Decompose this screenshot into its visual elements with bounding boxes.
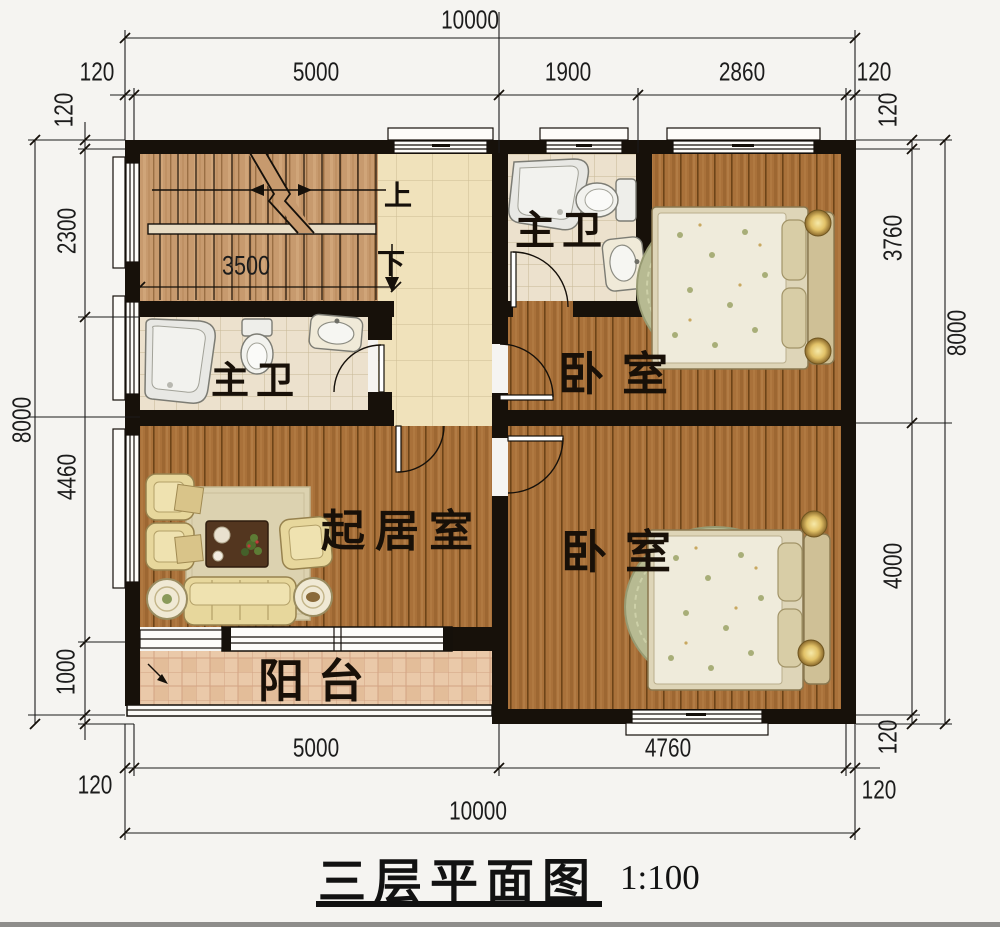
side-tray [174,484,203,513]
wall-exterior-right [841,140,856,724]
room-label-bath-top: 主卫 [515,198,609,256]
armchair-cushion [289,525,324,561]
bedside-lamp [805,210,831,236]
sink-left [309,314,364,352]
dim-top-wall-left: 120 [80,57,115,88]
dim-bottom-wall-left: 120 [78,770,113,801]
wall-interior [492,410,856,426]
window-corridor-top [388,128,493,153]
wall-interior [452,627,492,651]
room-label-balcony: 阳台 [258,645,378,711]
sofa-back [190,583,290,605]
dim-stair-width: 3500 [222,251,270,282]
pillow [778,609,802,667]
dim-bottom-wall-right: 120 [862,775,897,806]
dim-right-seg1: 3760 [878,215,909,261]
dim-right-seg2: 4000 [878,543,909,589]
wall-interior [125,301,394,317]
room-label-living: 起居室 [321,495,483,559]
wall-interior [368,392,392,426]
dim-top-wall-right-v: 120 [873,93,904,128]
window-bath-top [540,128,628,153]
window-bedroom-top [667,128,820,153]
wall-interior [492,140,508,344]
stair-landing-rail [148,224,376,234]
stair-up-label: 上 [384,174,412,214]
dim-top-wall-left-v: 120 [49,93,80,128]
title-underline [316,901,602,907]
dim-bottom-overall: 10000 [449,796,507,827]
floor-plan-drawing [0,0,1000,927]
bathtub-left [145,319,215,403]
dim-top-wall-right: 120 [857,57,892,88]
balcony-side-window [140,630,222,648]
pillow [778,543,802,601]
dim-top-overall: 10000 [441,5,499,36]
dim-left-seg1: 2300 [52,208,83,254]
window-stairwell-left [113,157,139,268]
plate [214,527,230,543]
pillow [782,220,806,280]
floor-plan-page: 10000 120 5000 1900 2860 120 120 120 800… [0,0,1000,927]
wall-interior [492,426,508,438]
wall-interior [492,496,508,724]
bedside-lamp [801,511,827,537]
wall-interior [125,410,394,426]
pillow [782,288,806,348]
dim-top-seg3: 2860 [719,57,765,88]
dim-top-seg1: 5000 [293,57,339,88]
dim-bottom-seg1: 5000 [293,733,339,764]
dim-top-seg2: 1900 [545,57,591,88]
window-living-left [113,429,139,588]
sofa-set [146,474,333,625]
bedside-lamp [805,338,831,364]
drawing-scale: 1:100 [620,858,700,898]
wall-interior [368,301,392,340]
dim-left-seg3: 1000 [51,649,82,695]
bedside-lamp [798,640,824,666]
room-label-bedroom-bottom: 卧室 [561,516,689,582]
stair-down-label: 下 [377,242,405,282]
dim-left-overall: 8000 [7,397,38,443]
cup [213,551,223,561]
room-label-bath-left: 主卫 [211,350,301,405]
side-tray [175,535,204,564]
dim-right-wall-bottom-v: 120 [873,720,904,755]
dim-right-overall: 8000 [942,310,973,356]
room-label-bedroom-top: 卧室 [558,338,686,404]
dim-bottom-seg2: 4760 [645,733,691,764]
window-bedroom-bottom [626,710,768,735]
window-bath-left [113,296,139,400]
image-bottom-border [0,922,1000,927]
dim-left-seg2: 4460 [52,454,83,500]
